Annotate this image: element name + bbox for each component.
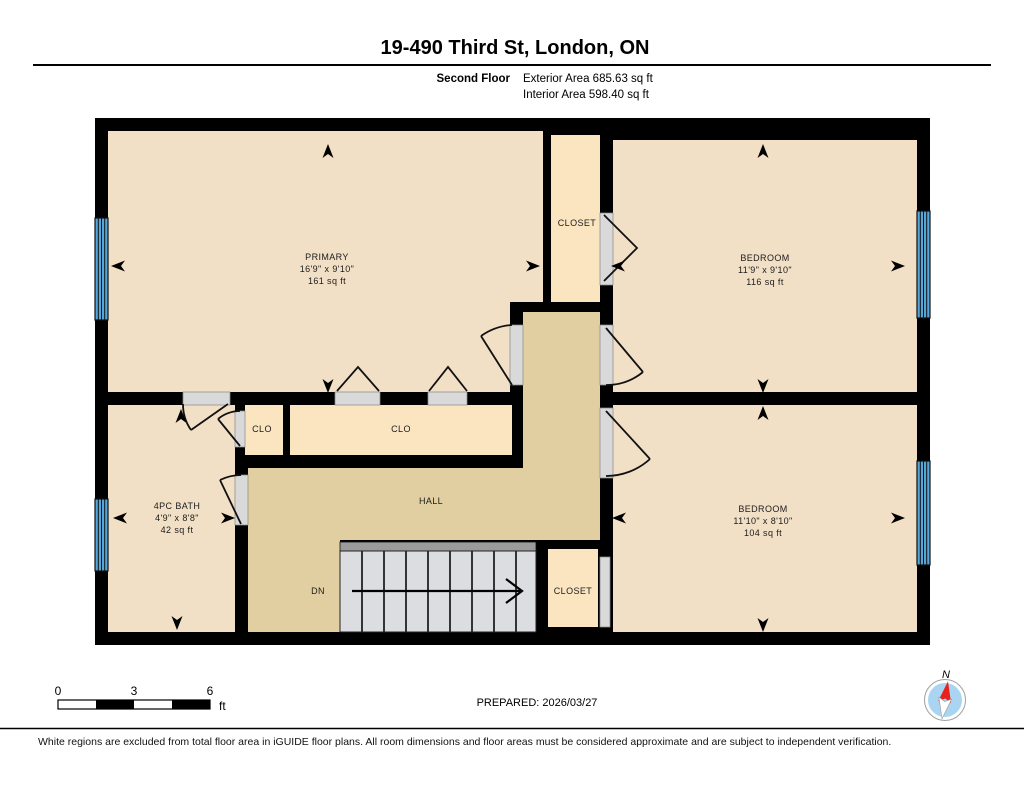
scale-unit: ft (219, 699, 226, 713)
prepared-date: PREPARED: 2026/03/27 (477, 697, 598, 709)
label-primary-area: 161 sq ft (308, 276, 346, 286)
window-bath-left (95, 499, 108, 571)
label-closet-top: CLOSET (558, 218, 597, 228)
door-opening-clo-bifold-1 (335, 392, 380, 405)
scale-bar-segment (96, 700, 134, 709)
label-primary-dims: 16'9" x 9'10" (300, 264, 355, 274)
label-bedroom-top-area: 116 sq ft (746, 277, 784, 287)
scale-bar-segment (172, 700, 210, 709)
door-opening-clo-bifold-2 (428, 392, 467, 405)
corridor (523, 312, 600, 468)
window-bedroom-top-right (917, 211, 930, 318)
label-bath-name: 4PC BATH (154, 501, 201, 511)
label-stairs-dn: DN (311, 586, 325, 596)
page-title: 19-490 Third St, London, ON (381, 37, 650, 59)
scale-bar: 0 3 6 ft (55, 684, 227, 713)
footer: White regions are excluded from total fl… (0, 729, 1024, 749)
label-bedroom-bottom-area: 104 sq ft (744, 528, 782, 538)
label-bedroom-top-name: BEDROOM (740, 253, 789, 263)
exterior-area-label: Exterior Area 685.63 sq ft (523, 73, 654, 85)
door-opening-bedroom-bottom (600, 408, 613, 478)
label-closet-bottom: CLOSET (554, 586, 593, 596)
window-bedroom-bottom-right (917, 461, 930, 565)
label-hall: HALL (419, 496, 443, 506)
stair-railing (340, 542, 536, 551)
door-opening-bath-top (183, 392, 230, 405)
floor-label: Second Floor (437, 73, 511, 85)
staircase (340, 542, 536, 632)
label-bedroom-bottom-name: BEDROOM (738, 504, 787, 514)
label-bath-dims: 4'9" x 8'8" (155, 513, 199, 523)
window-primary-left (95, 218, 108, 320)
label-primary-name: PRIMARY (305, 252, 349, 262)
footer-disclaimer: White regions are excluded from total fl… (38, 736, 891, 748)
floor-plan: PRIMARY 16'9" x 9'10" 161 sq ft BEDROOM … (95, 118, 930, 645)
door-opening-closet-bottom (600, 557, 610, 627)
scale-tick-0: 0 (55, 684, 62, 698)
interior-area-label: Interior Area 598.40 sq ft (523, 89, 650, 101)
scale-tick-3: 3 (131, 684, 138, 698)
label-bath-area: 42 sq ft (161, 525, 194, 535)
scale-tick-6: 6 (207, 684, 214, 698)
label-bedroom-top-dims: 11'9" x 9'10" (738, 265, 792, 275)
header: 19-490 Third St, London, ON Second Floor… (33, 37, 991, 101)
label-clo-large: CLO (391, 424, 411, 434)
label-bedroom-bottom-dims: 11'10" x 8'10" (733, 516, 792, 526)
floorplan-canvas: 19-490 Third St, London, ON Second Floor… (0, 0, 1024, 791)
floorplan-page: 19-490 Third St, London, ON Second Floor… (0, 0, 1024, 791)
compass: N (925, 669, 966, 721)
door-opening-primary (510, 325, 523, 385)
label-clo-small: CLO (252, 424, 272, 434)
